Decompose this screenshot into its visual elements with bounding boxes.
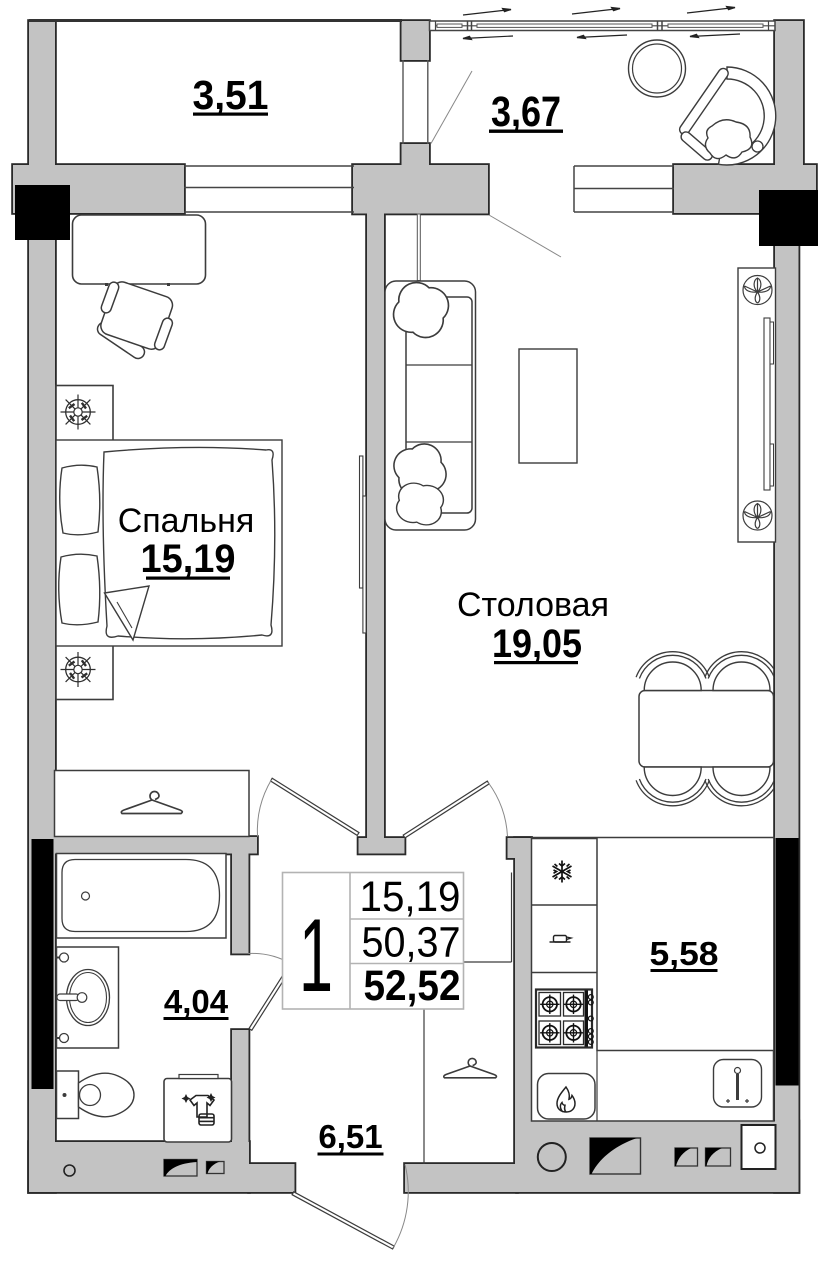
svg-text:50,37: 50,37 — [362, 919, 461, 967]
svg-text:6,51: 6,51 — [318, 1118, 382, 1155]
svg-text:Столовая: Столовая — [457, 586, 609, 624]
svg-text:3,51: 3,51 — [193, 72, 269, 118]
svg-text:52,52: 52,52 — [364, 962, 461, 1010]
svg-text:1: 1 — [299, 898, 333, 1014]
svg-text:15,19: 15,19 — [360, 873, 461, 921]
svg-text:15,19: 15,19 — [141, 537, 236, 581]
svg-text:Спальня: Спальня — [118, 502, 255, 540]
svg-text:3,67: 3,67 — [491, 88, 561, 136]
svg-text:19,05: 19,05 — [492, 622, 582, 666]
svg-text:4,04: 4,04 — [164, 983, 229, 1020]
svg-text:5,58: 5,58 — [650, 935, 719, 972]
